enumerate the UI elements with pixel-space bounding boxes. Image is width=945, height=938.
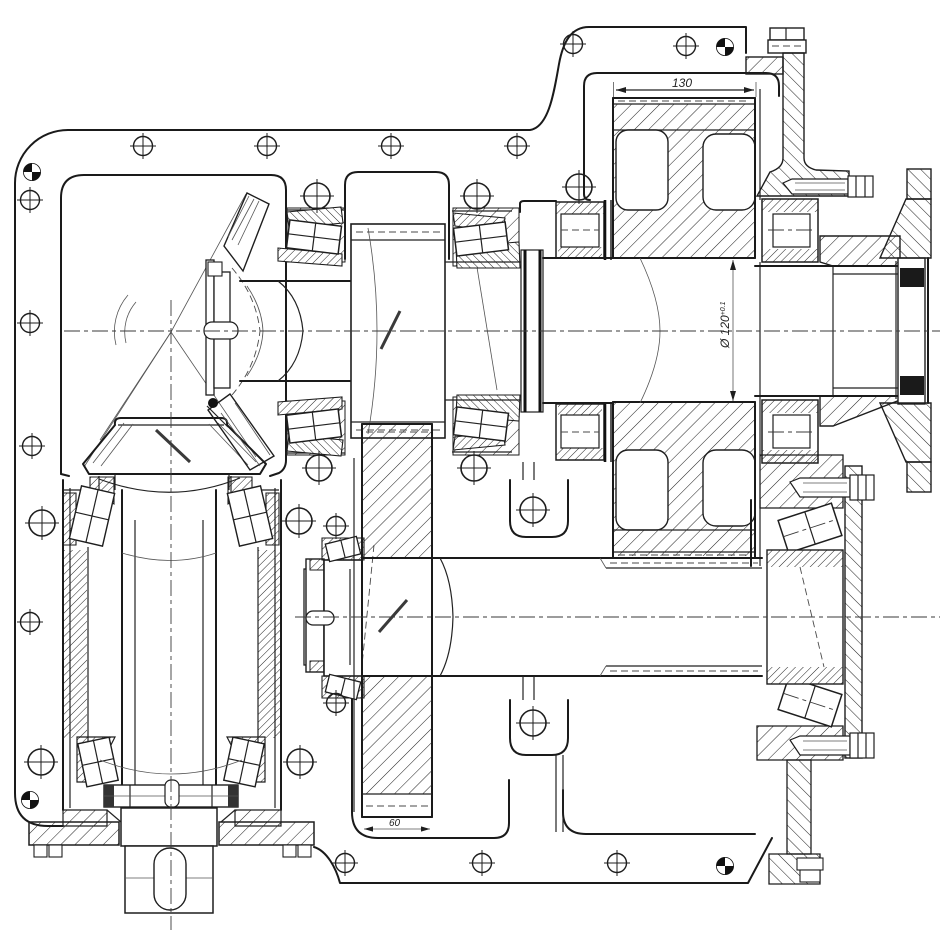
svg-text:60: 60 (389, 818, 401, 829)
svg-text:130: 130 (672, 76, 692, 90)
